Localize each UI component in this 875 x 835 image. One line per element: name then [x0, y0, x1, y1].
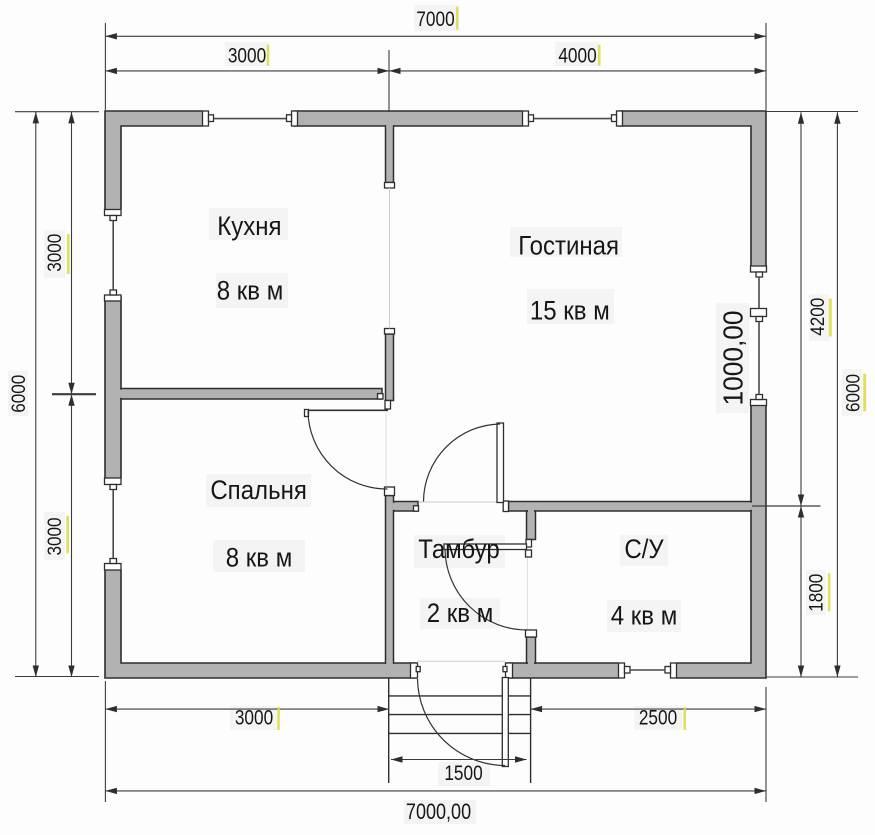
- svg-text:3000: 3000: [228, 45, 266, 68]
- svg-text:2 кв м: 2 кв м: [427, 599, 493, 629]
- svg-text:6000: 6000: [8, 375, 29, 413]
- svg-text:8 кв м: 8 кв м: [217, 276, 283, 306]
- svg-text:2500: 2500: [639, 707, 677, 730]
- svg-text:7000,00: 7000,00: [406, 800, 471, 824]
- svg-text:3000: 3000: [44, 234, 65, 272]
- svg-text:1000,00: 1000,00: [717, 310, 749, 405]
- svg-text:3000: 3000: [235, 707, 273, 730]
- svg-text:С/У: С/У: [624, 535, 664, 565]
- svg-text:Гостиная: Гостиная: [518, 231, 619, 261]
- svg-text:1500: 1500: [444, 763, 482, 786]
- svg-text:7000: 7000: [416, 9, 454, 32]
- svg-text:1800: 1800: [806, 574, 827, 612]
- svg-text:3000: 3000: [44, 517, 65, 555]
- svg-text:4000: 4000: [558, 45, 596, 68]
- svg-text:Тамбур: Тамбур: [418, 535, 500, 565]
- svg-text:15 кв м: 15 кв м: [530, 296, 610, 326]
- svg-text:6000: 6000: [843, 374, 864, 412]
- svg-text:Кухня: Кухня: [217, 212, 281, 242]
- svg-text:Спальня: Спальня: [210, 476, 307, 506]
- svg-text:4200: 4200: [807, 298, 828, 336]
- svg-text:4 кв м: 4 кв м: [611, 601, 677, 631]
- svg-text:8 кв м: 8 кв м: [226, 543, 292, 573]
